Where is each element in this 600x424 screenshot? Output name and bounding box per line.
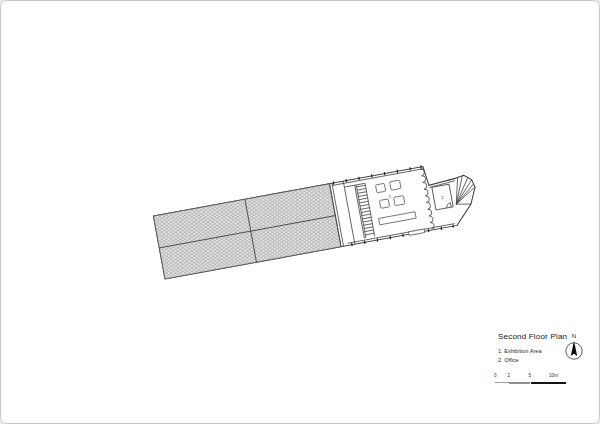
north-arrow-icon: N (563, 330, 585, 364)
scale-segment (495, 382, 509, 383)
scale-label: 5 (529, 373, 532, 378)
office-room: 2 (432, 184, 453, 210)
table (375, 183, 385, 192)
table (394, 196, 405, 206)
scale-segment (509, 382, 530, 384)
table (379, 199, 389, 208)
table (390, 180, 401, 190)
building-plan-group: 1 2 (153, 156, 481, 280)
scale-bar-line (495, 381, 567, 384)
scale-label: 0 (494, 373, 497, 378)
drawing-sheet: 1 2 Second Floor Plan 1. Exhibition Area… (0, 0, 600, 424)
drawing-canvas: 1 2 Second Floor Plan 1. Exhibition Area… (0, 0, 600, 424)
scale-segment (531, 382, 567, 384)
scale-label: 2 (508, 373, 511, 378)
north-label: N (572, 333, 576, 339)
scale-bar: 0 2 5 10m (495, 373, 567, 387)
scale-label: 10m (549, 373, 558, 378)
exhibition-hatch-area (153, 184, 341, 279)
